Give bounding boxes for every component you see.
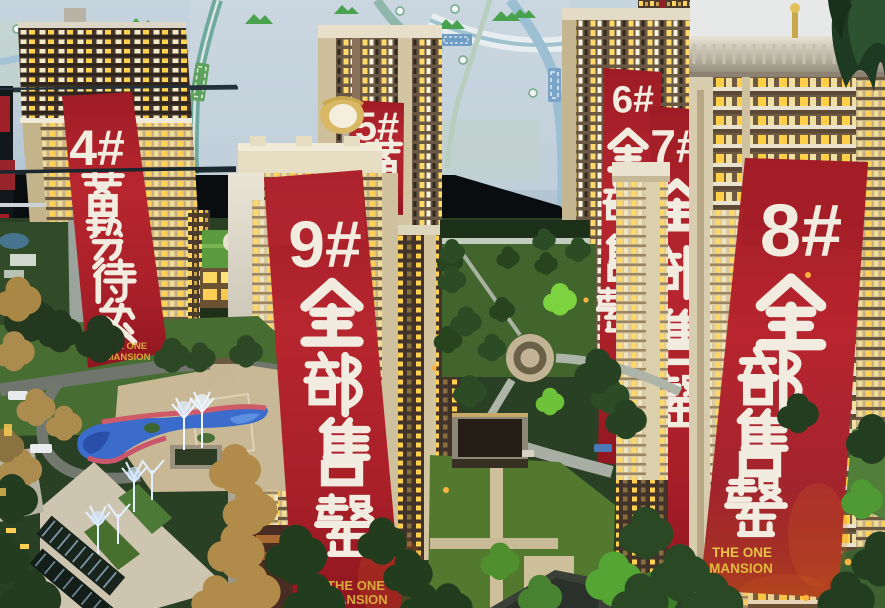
svg-text:4#: 4#	[69, 120, 125, 176]
svg-text:THE ONE: THE ONE	[712, 545, 772, 560]
svg-text:8#: 8#	[760, 189, 842, 272]
svg-text:6#: 6#	[611, 78, 655, 121]
svg-text:9#: 9#	[288, 207, 361, 281]
svg-text:MANSION: MANSION	[709, 561, 773, 576]
